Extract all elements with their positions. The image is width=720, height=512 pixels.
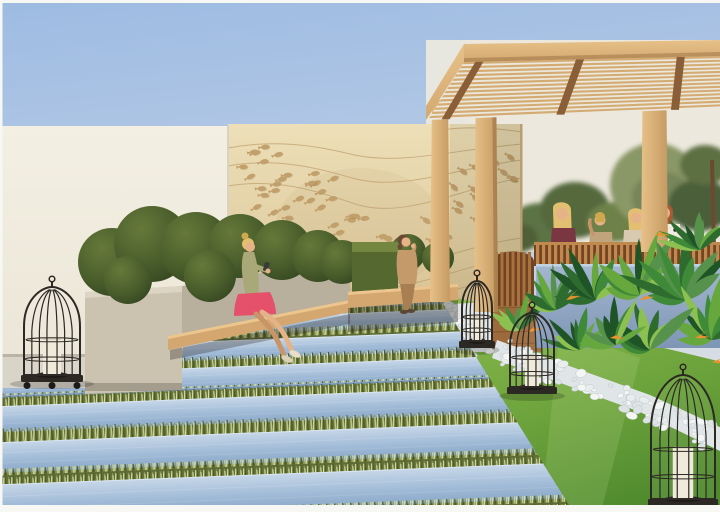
railing-slat — [632, 244, 635, 266]
wheel — [24, 382, 31, 389]
hedge-top — [352, 242, 398, 252]
railing-slat — [614, 244, 617, 266]
railing-slat — [590, 244, 593, 266]
hand — [266, 269, 271, 274]
head — [401, 237, 410, 246]
railing-slat — [602, 244, 605, 266]
railing-slat — [584, 244, 587, 266]
wheel — [74, 382, 81, 389]
hair-bun — [242, 233, 249, 240]
screen-slat — [517, 252, 520, 306]
hand-phone — [411, 244, 415, 248]
wheel — [49, 382, 56, 389]
railing-slat — [626, 244, 629, 266]
hair-low-bun — [398, 245, 403, 250]
pebble — [590, 393, 600, 400]
head — [245, 242, 255, 252]
railing-slat — [554, 244, 557, 266]
rooftop-terrace-render: Architectural rendering of a rooftop gar… — [0, 0, 720, 512]
planter-ground-shadow — [85, 383, 182, 391]
screen-slat — [506, 252, 509, 306]
railing-slat — [536, 244, 539, 266]
shoe — [400, 310, 408, 314]
tan-jacket — [397, 250, 418, 284]
railing-slat — [566, 244, 569, 266]
screen-slat — [512, 252, 515, 306]
railing-slat — [548, 244, 551, 266]
shoe-2 — [407, 309, 415, 313]
pebble — [622, 401, 627, 404]
railing-slat — [542, 244, 545, 266]
pergola-post-back — [430, 100, 450, 302]
pebble — [577, 384, 586, 391]
scene-canvas — [0, 0, 720, 512]
screen-slat — [501, 252, 504, 306]
